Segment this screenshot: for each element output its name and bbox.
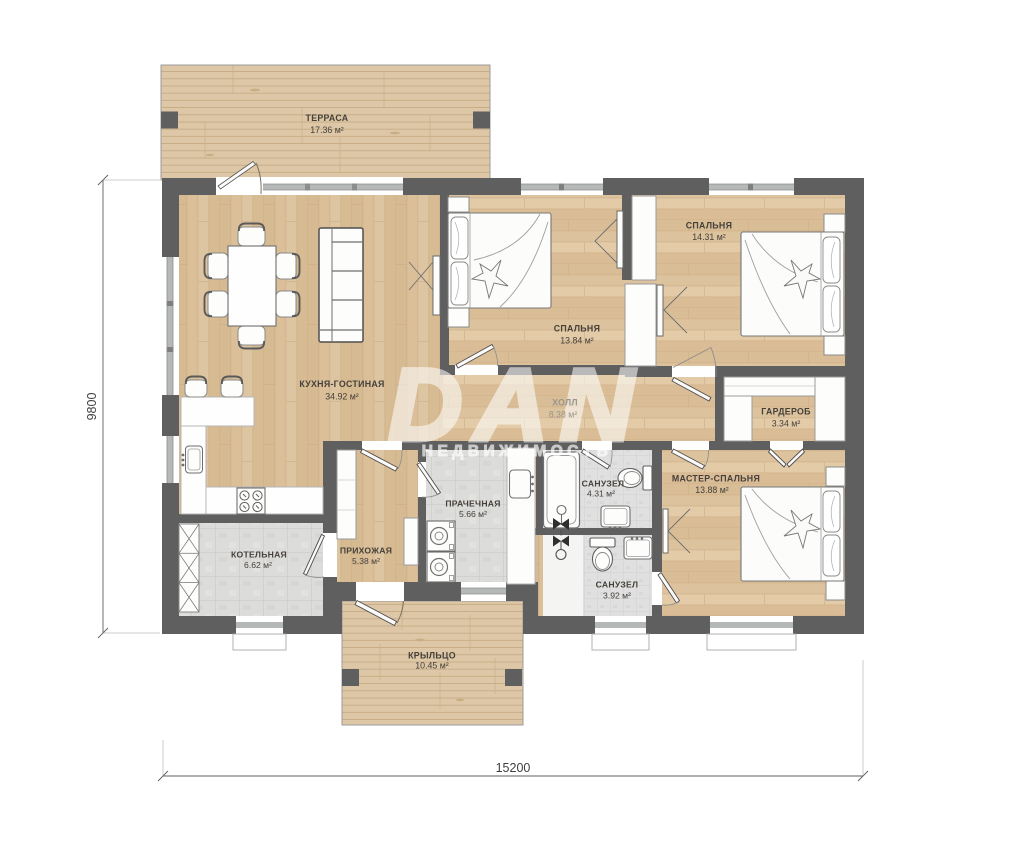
svg-text:СПАЛЬНЯ: СПАЛЬНЯ bbox=[554, 324, 600, 334]
svg-text:13.84 м²: 13.84 м² bbox=[560, 336, 594, 346]
svg-text:ГАРДЕРОБ: ГАРДЕРОБ bbox=[761, 407, 811, 417]
svg-text:34.92 м²: 34.92 м² bbox=[325, 392, 359, 402]
svg-text:НЕДВИЖИМОСТЬ: НЕДВИЖИМОСТЬ bbox=[422, 443, 612, 460]
svg-text:15200: 15200 bbox=[496, 761, 531, 775]
svg-text:ПРИХОЖАЯ: ПРИХОЖАЯ bbox=[340, 546, 392, 556]
svg-text:9800: 9800 bbox=[85, 393, 99, 421]
svg-text:СПАЛЬНЯ: СПАЛЬНЯ bbox=[686, 221, 732, 231]
svg-text:САНУЗЕЛ: САНУЗЕЛ bbox=[596, 580, 639, 590]
svg-text:13.88 м²: 13.88 м² bbox=[695, 485, 729, 495]
svg-text:4.31 м²: 4.31 м² bbox=[587, 489, 615, 499]
svg-text:КРЫЛЬЦО: КРЫЛЬЦО bbox=[408, 651, 456, 661]
svg-text:ХОЛЛ: ХОЛЛ bbox=[552, 398, 578, 408]
svg-text:ПРАЧЕЧНАЯ: ПРАЧЕЧНАЯ bbox=[445, 499, 500, 509]
svg-text:14.31 м²: 14.31 м² bbox=[692, 232, 726, 242]
svg-text:17.36 м²: 17.36 м² bbox=[310, 125, 344, 135]
svg-text:5.38 м²: 5.38 м² bbox=[352, 556, 380, 566]
svg-text:3.92 м²: 3.92 м² bbox=[603, 591, 631, 601]
svg-text:КУХНЯ-ГОСТИНАЯ: КУХНЯ-ГОСТИНАЯ bbox=[299, 379, 384, 389]
svg-text:5.66 м²: 5.66 м² bbox=[459, 509, 487, 519]
svg-text:САНУЗЕЛ: САНУЗЕЛ bbox=[582, 479, 625, 489]
svg-text:6.62 м²: 6.62 м² bbox=[244, 560, 272, 570]
svg-text:8.38 м²: 8.38 м² bbox=[549, 410, 578, 420]
svg-text:10.45 м²: 10.45 м² bbox=[415, 661, 449, 671]
svg-text:КОТЕЛЬНАЯ: КОТЕЛЬНАЯ bbox=[231, 550, 287, 560]
svg-text:ТЕРРАСА: ТЕРРАСА bbox=[306, 113, 349, 123]
svg-text:3.34 м²: 3.34 м² bbox=[772, 419, 801, 429]
svg-text:МАСТЕР-СПАЛЬНЯ: МАСТЕР-СПАЛЬНЯ bbox=[672, 474, 760, 484]
